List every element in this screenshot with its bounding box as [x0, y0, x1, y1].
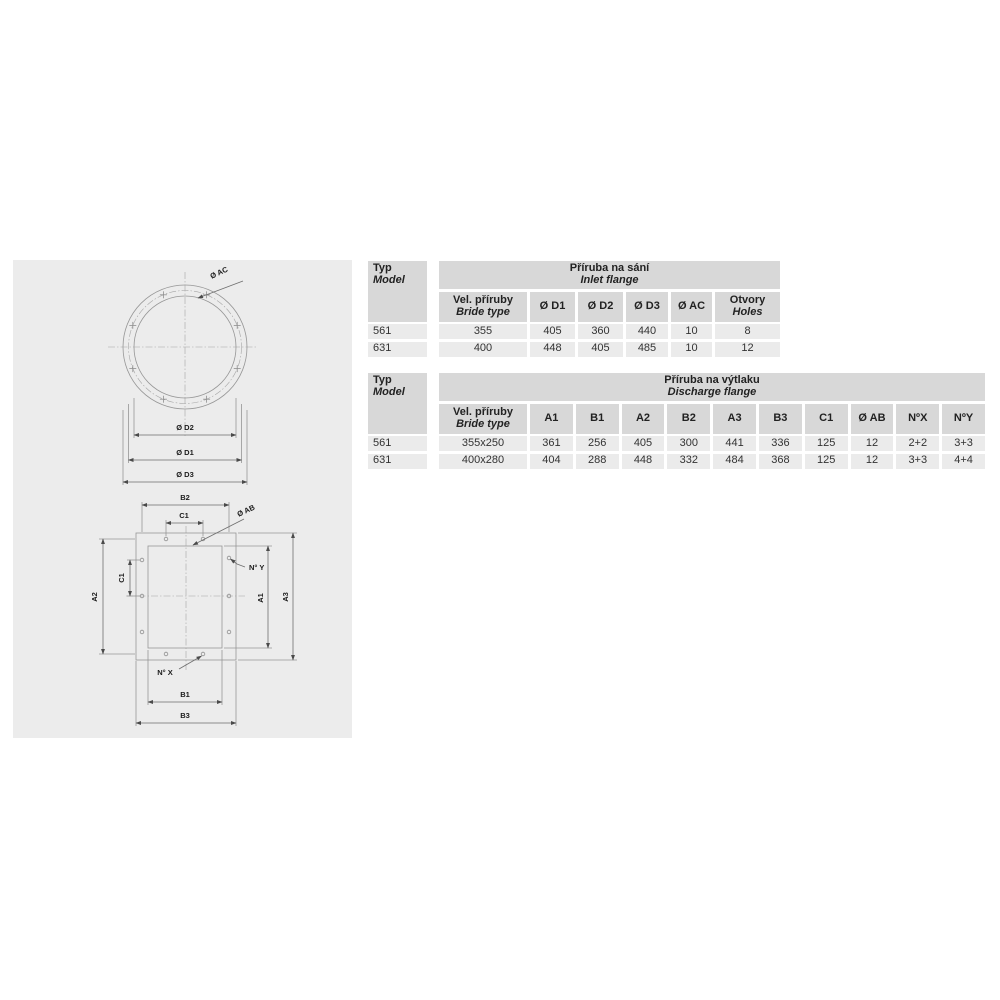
discharge-row2-ab: 12	[851, 454, 894, 469]
dim-label-a3: A3	[281, 592, 290, 602]
inlet-row2-d3: 485	[626, 342, 668, 357]
discharge-col-b3: B3	[759, 404, 802, 434]
dim-label-d3: Ø D3	[176, 470, 194, 479]
inlet-col-d2: Ø D2	[578, 292, 623, 322]
discharge-row1-ny: 3+3	[942, 436, 985, 451]
discharge-col-ab: Ø AB	[851, 404, 894, 434]
inlet-title-en: Inlet flange	[580, 275, 638, 287]
discharge-row2-b2: 332	[667, 454, 710, 469]
technical-drawing-panel: Ø AC Ø D2 Ø D1 Ø D3	[13, 260, 352, 738]
inlet-row2-ac: 10	[671, 342, 712, 357]
discharge-row1-size: 355x250	[439, 436, 527, 451]
dim-label-a1: A1	[256, 593, 265, 603]
inlet-col-ac: Ø AC	[671, 292, 712, 322]
discharge-col-a3: A3	[713, 404, 756, 434]
discharge-row2-typ: 631	[368, 454, 427, 469]
discharge-group-header: Příruba na výtlaku Discharge flange	[439, 373, 985, 401]
discharge-row2-a1: 404	[530, 454, 573, 469]
inlet-row1-d1: 405	[530, 324, 575, 339]
inlet-row2-size: 400	[439, 342, 527, 357]
size-label-cs: Vel. příruby	[453, 295, 513, 307]
discharge-row1-nx: 2+2	[896, 436, 939, 451]
dim-label-d1: Ø D1	[176, 448, 194, 457]
dim-label-a2: A2	[90, 592, 99, 602]
inlet-row1-ac: 10	[671, 324, 712, 339]
size-label-en: Bride type	[456, 307, 510, 319]
dim-label-c1-top: C1	[179, 511, 189, 520]
discharge-col-c1: C1	[805, 404, 848, 434]
dim-label-ab: Ø AB	[236, 503, 257, 519]
inlet-size-header: Vel. příruby Bride type	[439, 292, 527, 322]
inlet-flange-drawing: Ø AC Ø D2 Ø D1 Ø D3	[108, 265, 258, 485]
dim-label-ny: N° Y	[249, 563, 264, 572]
discharge-row1-b1: 256	[576, 436, 619, 451]
discharge-row2-ny: 4+4	[942, 454, 985, 469]
discharge-col-a2: A2	[622, 404, 665, 434]
discharge-row1-c1: 125	[805, 436, 848, 451]
discharge-flange-table: Typ Model Příruba na výtlaku Discharge f…	[368, 373, 985, 469]
inlet-row2-d1: 448	[530, 342, 575, 357]
discharge-row1-b2: 300	[667, 436, 710, 451]
discharge-col-nx: NºX	[896, 404, 939, 434]
discharge-row2-a3: 484	[713, 454, 756, 469]
discharge-row1-b3: 336	[759, 436, 802, 451]
discharge-typ-header: Typ Model	[368, 373, 427, 434]
inlet-typ-header: Typ Model	[368, 261, 427, 322]
discharge-size-header: Vel. příruby Bride type	[439, 404, 527, 434]
discharge-row1-a1: 361	[530, 436, 573, 451]
inlet-row1-size: 355	[439, 324, 527, 339]
discharge-bolt-holes	[140, 537, 231, 656]
model-label: Model	[373, 275, 405, 287]
size-label-en: Bride type	[456, 419, 510, 431]
inlet-row1-d3: 440	[626, 324, 668, 339]
discharge-row2-a2: 448	[622, 454, 665, 469]
dim-label-c1-left: C1	[117, 573, 126, 583]
inlet-row1-typ: 561	[368, 324, 427, 339]
inlet-row2-d2: 405	[578, 342, 623, 357]
discharge-col-ny: NºY	[942, 404, 985, 434]
discharge-row2-nx: 3+3	[896, 454, 939, 469]
discharge-row1-typ: 561	[368, 436, 427, 451]
holes-label-cs: Otvory	[730, 295, 765, 307]
datasheet-page: Ø AC Ø D2 Ø D1 Ø D3	[0, 0, 1000, 1000]
discharge-row2-size: 400x280	[439, 454, 527, 469]
discharge-row1-a2: 405	[622, 436, 665, 451]
model-label: Model	[373, 387, 405, 399]
inlet-col-d1: Ø D1	[530, 292, 575, 322]
discharge-col-b2: B2	[667, 404, 710, 434]
dim-label-b3: B3	[180, 711, 190, 720]
discharge-row2-b3: 368	[759, 454, 802, 469]
inlet-flange-table: Typ Model Příruba na sání Inlet flange V…	[368, 261, 780, 357]
discharge-col-b1: B1	[576, 404, 619, 434]
dim-label-b1: B1	[180, 690, 190, 699]
dim-label-ac: Ø AC	[209, 265, 230, 281]
inlet-row2-typ: 631	[368, 342, 427, 357]
holes-label-en: Holes	[733, 307, 763, 319]
discharge-row1-a3: 441	[713, 436, 756, 451]
inlet-row1-d2: 360	[578, 324, 623, 339]
discharge-row2-b1: 288	[576, 454, 619, 469]
inlet-row1-holes: 8	[715, 324, 780, 339]
inlet-col-holes: Otvory Holes	[715, 292, 780, 322]
size-label-cs: Vel. příruby	[453, 407, 513, 419]
inlet-col-d3: Ø D3	[626, 292, 668, 322]
discharge-flange-drawing: B2 C1 Ø AB N° Y C1 A2	[90, 493, 297, 726]
dim-label-nx: N° X	[157, 668, 173, 677]
inlet-row2-holes: 12	[715, 342, 780, 357]
dim-label-b2: B2	[180, 493, 190, 502]
discharge-row1-ab: 12	[851, 436, 894, 451]
discharge-col-a1: A1	[530, 404, 573, 434]
inlet-group-header: Příruba na sání Inlet flange	[439, 261, 780, 289]
dim-label-d2: Ø D2	[176, 423, 194, 432]
discharge-row2-c1: 125	[805, 454, 848, 469]
flange-dimension-drawing: Ø AC Ø D2 Ø D1 Ø D3	[13, 260, 352, 738]
discharge-title-en: Discharge flange	[668, 387, 757, 399]
